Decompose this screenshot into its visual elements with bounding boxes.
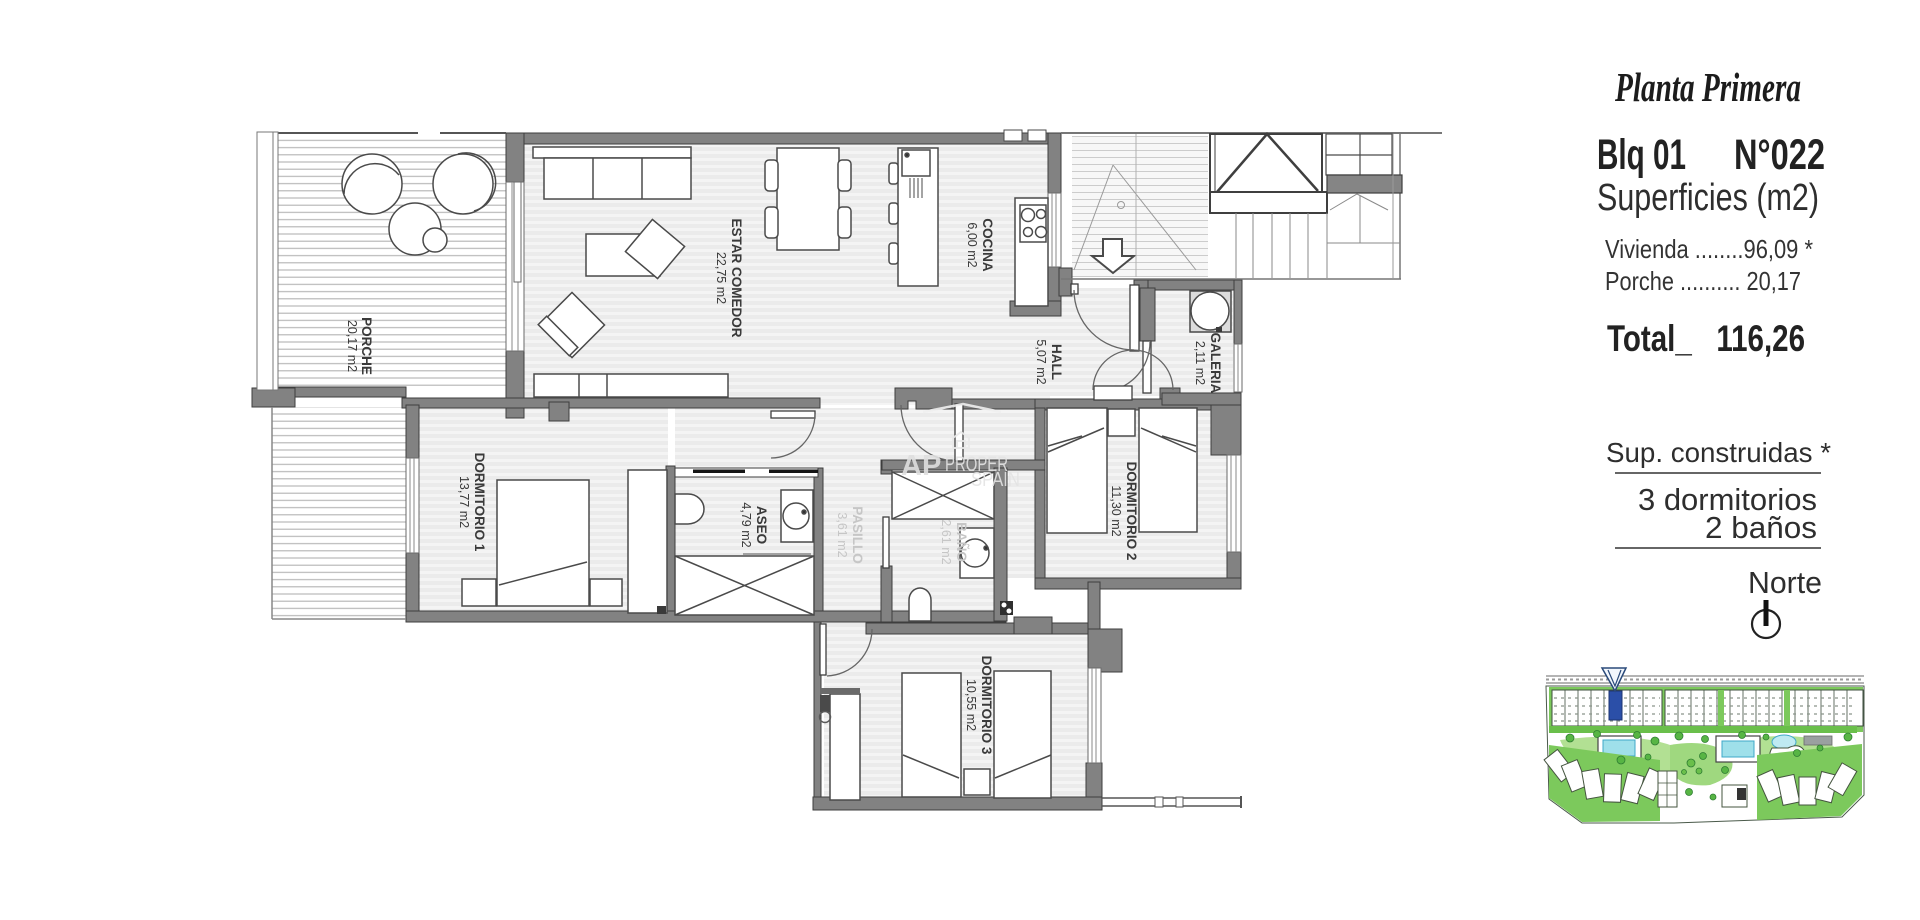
- svg-text:DORMITORIO 3: DORMITORIO 3: [979, 656, 994, 755]
- svg-text:Superficies (m2): Superficies (m2): [1597, 177, 1819, 219]
- svg-text:6,00 m2: 6,00 m2: [965, 222, 979, 267]
- svg-text:10,55 m2: 10,55 m2: [964, 679, 978, 731]
- svg-text:Vivienda ........96,09 *: Vivienda ........96,09 *: [1605, 234, 1813, 264]
- svg-text:SPAIN: SPAIN: [971, 469, 1020, 491]
- svg-text:Total_ 116,26: Total_ 116,26: [1607, 318, 1805, 359]
- svg-text:PORCHE: PORCHE: [359, 317, 374, 375]
- svg-text:Blq 01: Blq 01: [1597, 131, 1686, 179]
- svg-text:DORMITORIO 1: DORMITORIO 1: [472, 453, 487, 552]
- svg-text:2,61 m2: 2,61 m2: [939, 519, 953, 564]
- svg-text:Sup. construidas *: Sup. construidas *: [1606, 437, 1831, 468]
- svg-text:2,11 m2: 2,11 m2: [1193, 341, 1207, 385]
- svg-text:20,17 m2: 20,17 m2: [345, 320, 359, 372]
- svg-text:Porche .......... 20,17: Porche .......... 20,17: [1605, 266, 1801, 296]
- svg-text:13,77 m2: 13,77 m2: [457, 476, 471, 528]
- svg-text:22,75 m2: 22,75 m2: [714, 252, 728, 304]
- svg-text:2 baños: 2 baños: [1705, 510, 1817, 545]
- svg-text:N°022: N°022: [1734, 131, 1825, 179]
- svg-text:HALL: HALL: [1049, 344, 1064, 380]
- svg-text:Planta Primera: Planta Primera: [1614, 64, 1801, 110]
- svg-text:11,30 m2: 11,30 m2: [1109, 485, 1123, 536]
- svg-text:4,79 m2: 4,79 m2: [739, 502, 753, 547]
- svg-text:DORMITORIO 2: DORMITORIO 2: [1124, 462, 1139, 561]
- svg-text:BAÑO: BAÑO: [954, 522, 969, 562]
- svg-text:AP: AP: [901, 450, 941, 482]
- svg-text:GALERIA: GALERIA: [1208, 333, 1223, 394]
- svg-text:COCINA: COCINA: [980, 218, 995, 271]
- svg-text:Norte: Norte: [1748, 565, 1822, 600]
- svg-text:ESTAR COMEDOR: ESTAR COMEDOR: [729, 218, 744, 337]
- svg-text:PASILLO: PASILLO: [850, 506, 865, 564]
- svg-text:3,61 m2: 3,61 m2: [835, 512, 849, 557]
- svg-text:5,07 m2: 5,07 m2: [1034, 339, 1048, 384]
- svg-text:ASEO: ASEO: [754, 506, 769, 544]
